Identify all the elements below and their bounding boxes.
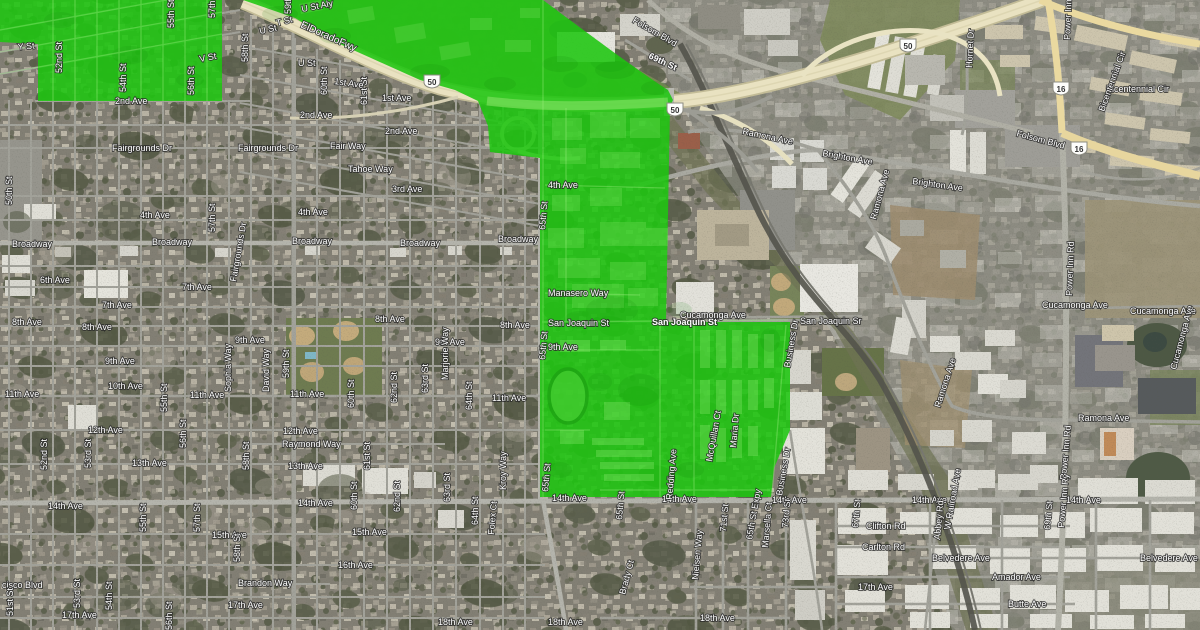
- svg-text:52nd St: 52nd St: [54, 41, 64, 73]
- svg-text:56th St: 56th St: [186, 66, 196, 95]
- svg-text:16th Ave: 16th Ave: [338, 560, 373, 570]
- svg-text:11th Ave: 11th Ave: [190, 390, 224, 400]
- svg-text:60th St: 60th St: [346, 379, 356, 408]
- svg-text:Kroy Way: Kroy Way: [498, 451, 508, 490]
- svg-text:2nd Ave: 2nd Ave: [300, 110, 332, 120]
- svg-text:58th St: 58th St: [232, 533, 242, 562]
- svg-text:62nd St: 62nd St: [389, 371, 399, 403]
- svg-text:Tahoe Way: Tahoe Way: [348, 164, 393, 174]
- svg-text:56th St: 56th St: [178, 419, 188, 448]
- svg-text:57th St: 57th St: [192, 503, 202, 532]
- svg-text:4th Ave: 4th Ave: [548, 180, 578, 190]
- svg-text:59th St: 59th St: [281, 349, 291, 378]
- svg-text:50: 50: [428, 78, 437, 87]
- svg-text:58th St: 58th St: [241, 441, 251, 470]
- svg-text:55th St: 55th St: [138, 503, 148, 532]
- svg-text:14th Ave: 14th Ave: [1066, 495, 1101, 505]
- svg-text:9th Ave: 9th Ave: [105, 356, 135, 366]
- svg-text:2nd Ave: 2nd Ave: [115, 96, 147, 106]
- svg-text:57th St: 57th St: [207, 203, 217, 232]
- svg-text:14th Ave: 14th Ave: [552, 493, 587, 503]
- svg-text:Hornet Dr: Hornet Dr: [964, 29, 976, 68]
- svg-text:Broadway: Broadway: [400, 238, 441, 248]
- svg-text:Y St: Y St: [17, 41, 35, 52]
- svg-text:63rd St: 63rd St: [420, 363, 430, 393]
- svg-text:11th Ave: 11th Ave: [290, 389, 324, 399]
- svg-text:Belvedere Ave: Belvedere Ave: [1140, 553, 1198, 563]
- svg-text:53rd St: 53rd St: [83, 438, 93, 468]
- svg-text:8th Ave: 8th Ave: [12, 317, 42, 327]
- svg-text:6th Ave: 6th Ave: [40, 275, 70, 285]
- svg-text:17th Ave: 17th Ave: [62, 610, 97, 620]
- svg-text:Broadway: Broadway: [498, 234, 539, 244]
- svg-text:50: 50: [904, 42, 913, 51]
- svg-text:1st Ave: 1st Ave: [382, 93, 411, 103]
- svg-text:Fairgrounds Dr: Fairgrounds Dr: [112, 143, 172, 153]
- svg-text:64th St: 64th St: [464, 381, 474, 410]
- svg-text:Broadway: Broadway: [12, 239, 53, 249]
- svg-text:54th St: 54th St: [118, 63, 128, 92]
- svg-text:58th St: 58th St: [240, 33, 250, 62]
- svg-text:4th Ave: 4th Ave: [298, 207, 328, 217]
- svg-text:62nd St: 62nd St: [392, 480, 402, 512]
- svg-text:Manasero Way: Manasero Way: [548, 288, 609, 298]
- svg-text:Belvedere Ave: Belvedere Ave: [932, 553, 990, 563]
- svg-text:11th Ave: 11th Ave: [492, 393, 526, 403]
- svg-text:14th Ave: 14th Ave: [298, 498, 333, 508]
- svg-text:2nd Ave: 2nd Ave: [385, 126, 417, 136]
- svg-text:13th Ave: 13th Ave: [132, 458, 167, 468]
- svg-text:9th Ave: 9th Ave: [235, 335, 265, 345]
- svg-text:Sophia Way: Sophia Way: [223, 343, 233, 392]
- svg-text:8th Ave: 8th Ave: [500, 320, 530, 330]
- svg-text:13th Ave: 13th Ave: [288, 461, 323, 471]
- svg-text:57th St: 57th St: [207, 0, 217, 18]
- svg-text:Marjorie Way: Marjorie Way: [440, 327, 450, 380]
- svg-text:12th Ave: 12th Ave: [283, 426, 318, 436]
- svg-text:8th Ave: 8th Ave: [82, 322, 112, 332]
- svg-text:60th St: 60th St: [319, 66, 329, 95]
- svg-text:Power Inn Rd: Power Inn Rd: [1064, 241, 1076, 296]
- svg-text:12th Ave: 12th Ave: [88, 425, 123, 435]
- svg-text:61st St: 61st St: [362, 441, 372, 470]
- svg-text:San Joaquin St: San Joaquin St: [548, 318, 610, 328]
- svg-text:63rd St: 63rd St: [442, 472, 452, 502]
- svg-text:4th Ave: 4th Ave: [140, 210, 170, 220]
- svg-text:Cucamonga Ave: Cucamonga Ave: [680, 310, 746, 320]
- svg-text:50th St: 50th St: [4, 176, 14, 205]
- svg-text:17th Ave: 17th Ave: [858, 582, 893, 592]
- svg-text:David Way: David Way: [261, 348, 271, 392]
- svg-text:11th Ave: 11th Ave: [5, 389, 39, 399]
- svg-text:51st St: 51st St: [5, 587, 15, 616]
- svg-text:7th Ave: 7th Ave: [102, 300, 132, 310]
- svg-text:Carlton Rd: Carlton Rd: [862, 542, 905, 552]
- svg-text:14th Ave: 14th Ave: [48, 501, 83, 511]
- svg-text:18th Ave: 18th Ave: [438, 617, 473, 627]
- svg-text:U St: U St: [298, 58, 316, 68]
- svg-text:8th Ave: 8th Ave: [375, 314, 405, 324]
- svg-text:Fairgrounds Dr: Fairgrounds Dr: [238, 143, 298, 153]
- svg-text:17th Ave: 17th Ave: [228, 600, 263, 610]
- svg-text:Amador Ave: Amador Ave: [992, 572, 1041, 582]
- svg-text:7th Ave: 7th Ave: [182, 282, 212, 292]
- svg-text:18th Ave: 18th Ave: [548, 617, 583, 627]
- svg-text:16: 16: [1057, 85, 1066, 94]
- svg-text:53rd St: 53rd St: [72, 578, 82, 608]
- svg-text:56th St: 56th St: [164, 601, 174, 630]
- svg-text:18th Ave: 18th Ave: [700, 613, 735, 623]
- svg-text:52nd St: 52nd St: [39, 438, 49, 470]
- svg-text:10th Ave: 10th Ave: [108, 381, 143, 391]
- svg-text:15th Ave: 15th Ave: [352, 527, 387, 537]
- svg-text:Butte Ave: Butte Ave: [1008, 599, 1046, 609]
- svg-text:54th St: 54th St: [104, 581, 114, 610]
- svg-text:16: 16: [1075, 145, 1084, 154]
- svg-text:Cucamonga Ave: Cucamonga Ave: [1042, 300, 1108, 310]
- svg-text:59th St: 59th St: [283, 0, 293, 14]
- svg-text:50: 50: [671, 106, 680, 115]
- svg-text:Fair Way: Fair Way: [330, 141, 366, 151]
- svg-text:Raymond Way: Raymond Way: [282, 439, 341, 449]
- svg-text:Clifton Rd: Clifton Rd: [866, 521, 906, 531]
- svg-text:55th St: 55th St: [159, 383, 169, 412]
- svg-text:San Joaquin Sr: San Joaquin Sr: [800, 316, 862, 326]
- svg-text:64th St: 64th St: [470, 496, 480, 525]
- svg-text:3rd Ave: 3rd Ave: [392, 184, 422, 194]
- svg-text:Broadway: Broadway: [292, 236, 333, 246]
- svg-text:Broadway: Broadway: [152, 237, 193, 247]
- svg-text:Power Inn Rd: Power Inn Rd: [1062, 0, 1074, 40]
- svg-text:9th Ave: 9th Ave: [548, 342, 578, 352]
- svg-text:55th St: 55th St: [166, 0, 176, 28]
- svg-text:Ramona Ave: Ramona Ave: [1078, 413, 1129, 423]
- svg-text:Brandon Way: Brandon Way: [238, 578, 293, 588]
- svg-text:60th St: 60th St: [349, 481, 359, 510]
